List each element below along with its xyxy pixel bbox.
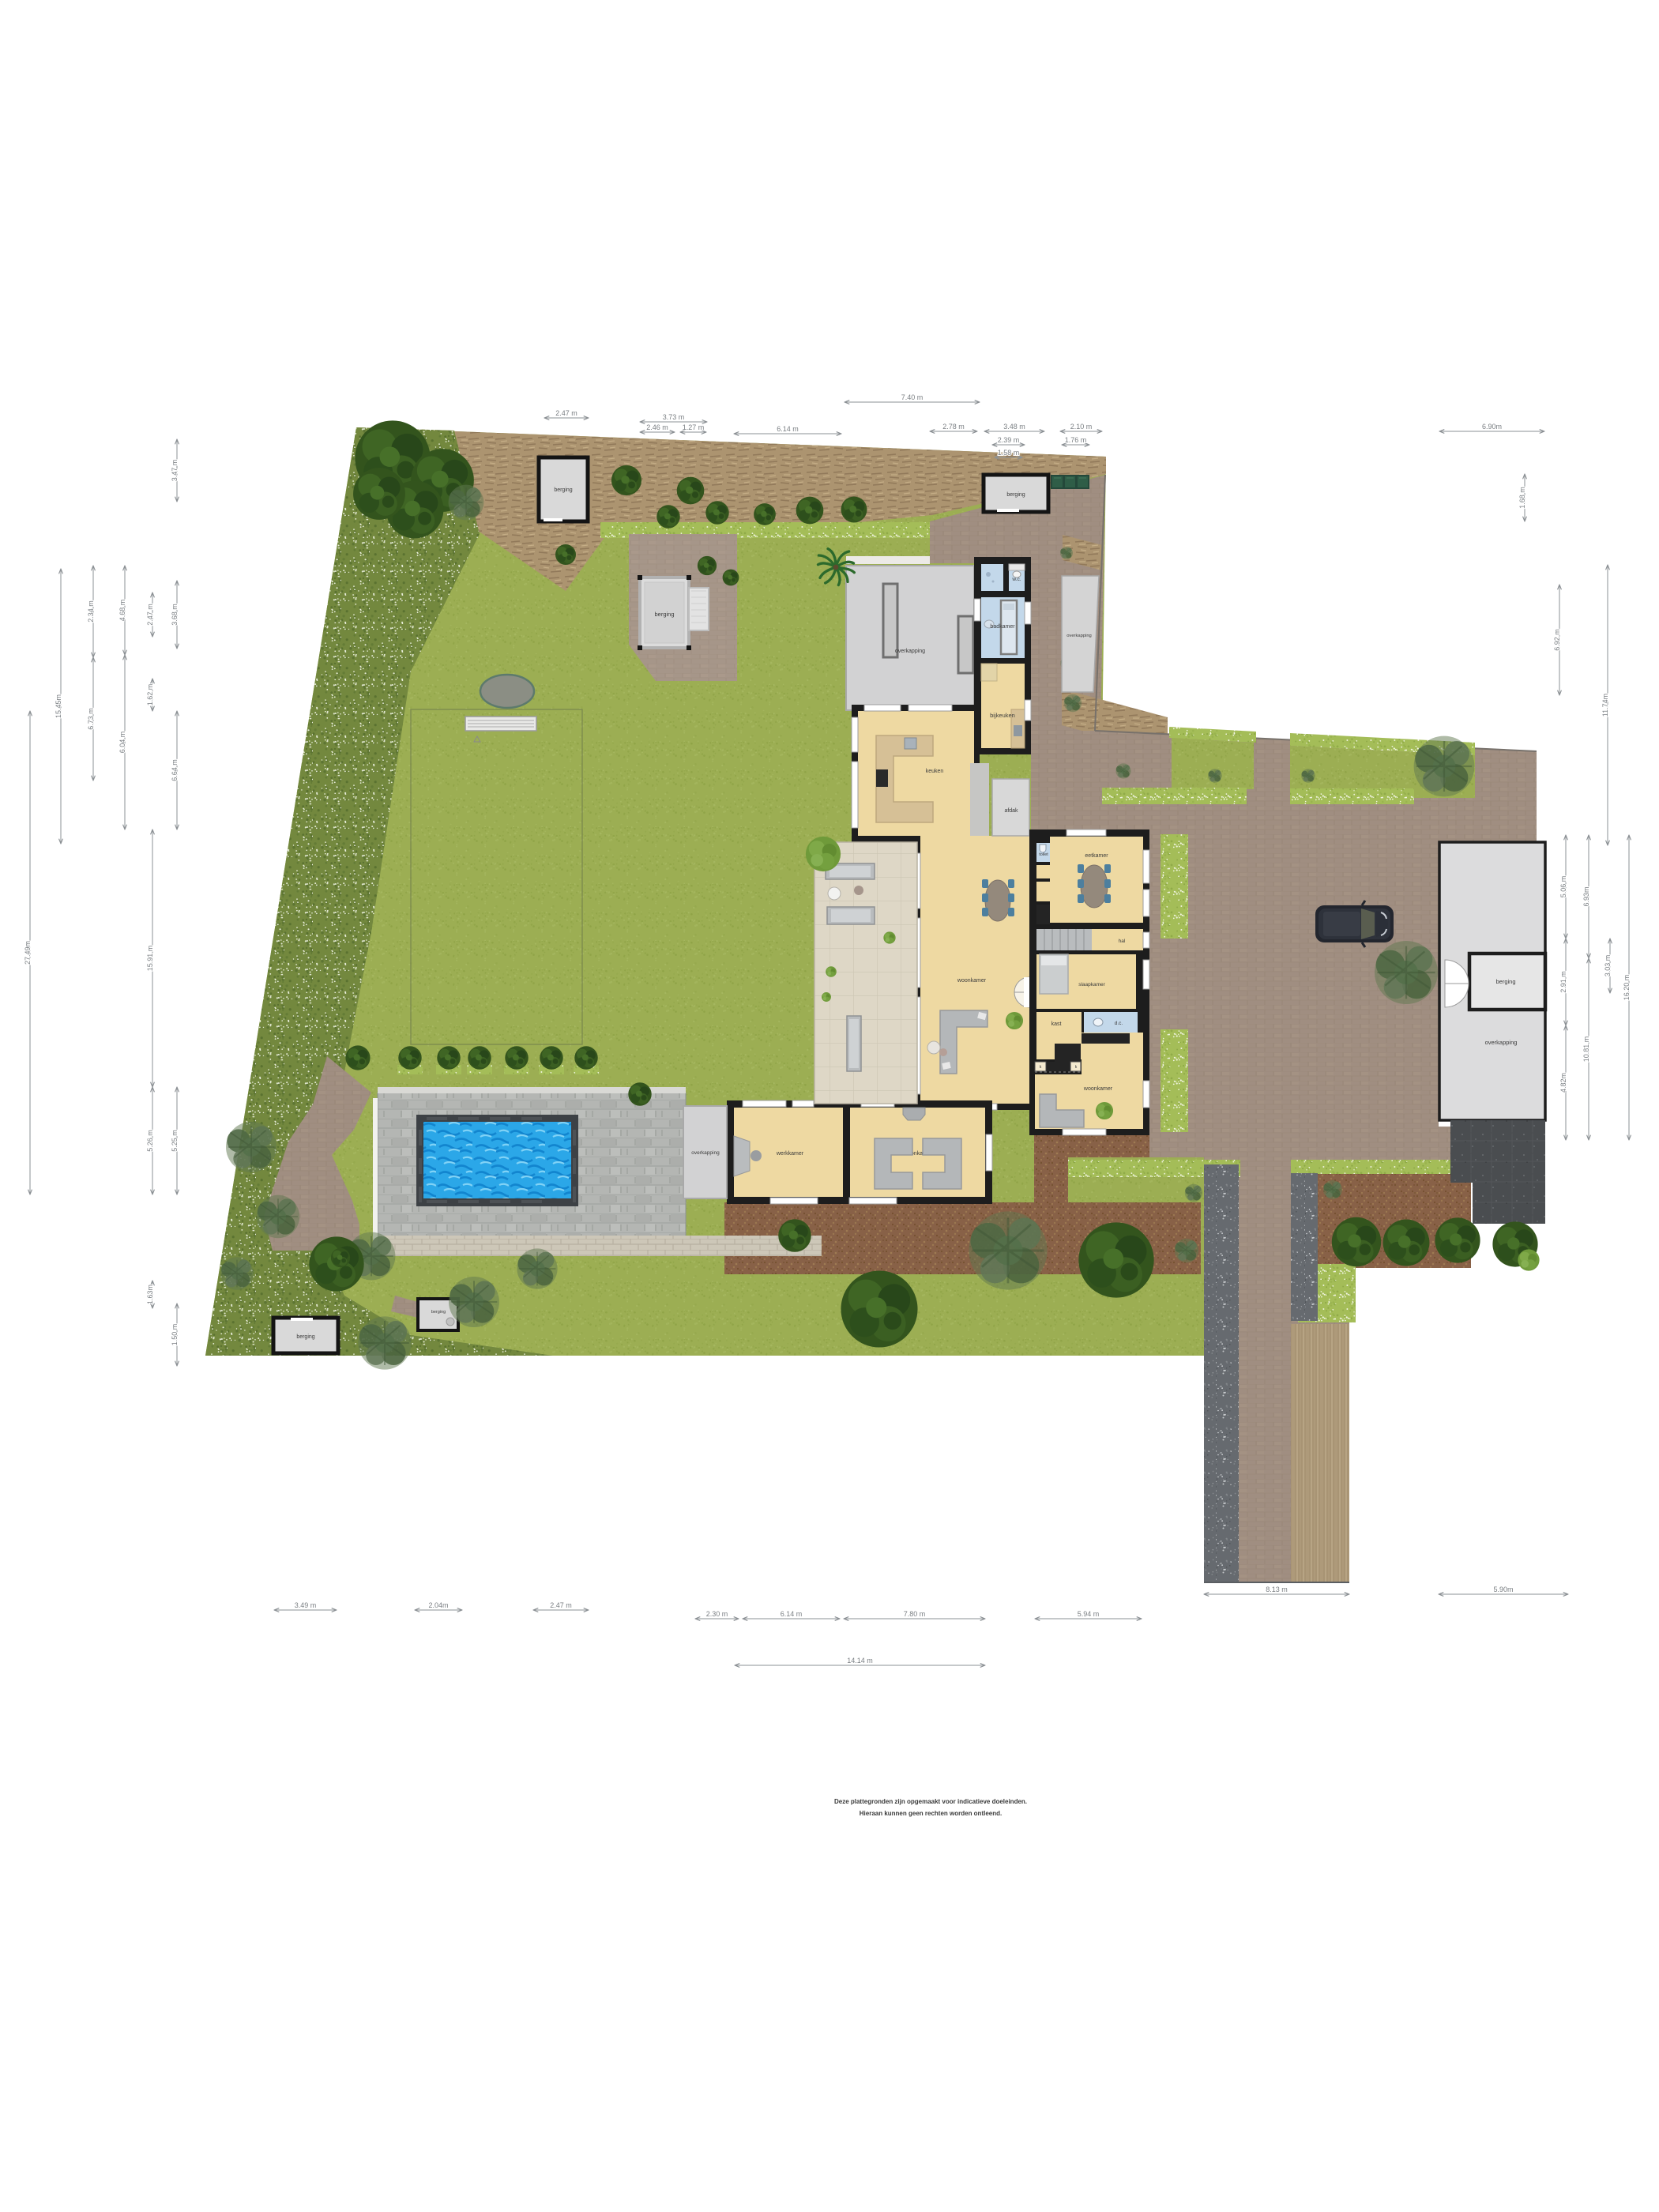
svg-text:berging: berging	[654, 611, 674, 618]
svg-text:1.63m: 1.63m	[146, 1285, 154, 1304]
svg-text:8.13 m: 8.13 m	[1266, 1586, 1288, 1593]
svg-text:overkapping: overkapping	[691, 1150, 720, 1156]
svg-text:badkamer: badkamer	[990, 624, 1015, 630]
svg-text:berging: berging	[554, 487, 572, 493]
svg-text:2.30 m: 2.30 m	[706, 1610, 728, 1618]
svg-text:3.47 m: 3.47 m	[171, 460, 179, 482]
svg-text:3.49 m: 3.49 m	[295, 1601, 317, 1609]
svg-text:15.91 m: 15.91 m	[146, 946, 154, 972]
svg-text:2.47 m: 2.47 m	[146, 604, 154, 626]
svg-text:overkapping: overkapping	[1485, 1039, 1518, 1046]
svg-text:1.58 m: 1.58 m	[998, 449, 1020, 457]
svg-text:5.25 m: 5.25 m	[171, 1130, 179, 1152]
svg-text:d.c.: d.c.	[1115, 1021, 1123, 1026]
svg-text:2.34 m: 2.34 m	[87, 600, 95, 623]
svg-text:6.92 m: 6.92 m	[1553, 629, 1561, 651]
svg-text:2.46 m: 2.46 m	[646, 423, 668, 431]
svg-text:5.06 m: 5.06 m	[1559, 876, 1567, 898]
svg-text:4.82m: 4.82m	[1559, 1073, 1567, 1093]
svg-text:11.74m: 11.74m	[1601, 694, 1609, 717]
svg-text:6.04 m: 6.04 m	[118, 732, 126, 754]
svg-text:2.91 m: 2.91 m	[1559, 971, 1567, 993]
svg-text:slaapkamer: slaapkamer	[1078, 982, 1105, 987]
svg-text:berging: berging	[431, 1310, 446, 1315]
svg-text:5.90m: 5.90m	[1493, 1586, 1513, 1593]
svg-text:3.68 m: 3.68 m	[171, 604, 179, 626]
svg-text:afdak: afdak	[1004, 808, 1018, 814]
svg-text:woonkamer: woonkamer	[1083, 1086, 1113, 1092]
svg-text:Deze plattegronden zijn opgema: Deze plattegronden zijn opgemaakt voor i…	[834, 1798, 1027, 1805]
svg-text:overkapping: overkapping	[895, 649, 925, 654]
svg-text:kast: kast	[1051, 1021, 1062, 1027]
svg-text:3.03 m: 3.03 m	[1604, 955, 1612, 977]
svg-text:Hieraan kunnen geen rechten wo: Hieraan kunnen geen rechten worden ontle…	[860, 1810, 1002, 1817]
svg-text:werkkamer: werkkamer	[776, 1151, 804, 1157]
svg-text:4.68 m: 4.68 m	[118, 600, 126, 622]
svg-text:5.94 m: 5.94 m	[1078, 1610, 1100, 1618]
svg-text:14.14 m: 14.14 m	[847, 1657, 873, 1665]
svg-text:7.40 m: 7.40 m	[901, 393, 924, 401]
svg-text:toilet: toilet	[1039, 852, 1048, 857]
svg-text:16.20 m: 16.20 m	[1623, 975, 1631, 1001]
svg-text:6.90m: 6.90m	[1482, 423, 1502, 431]
svg-text:berging: berging	[1495, 978, 1515, 985]
svg-text:3.48 m: 3.48 m	[1003, 423, 1025, 431]
svg-text:bijkeuken: bijkeuken	[990, 712, 1015, 719]
svg-text:6.93m: 6.93m	[1582, 886, 1590, 906]
svg-text:2.04m: 2.04m	[428, 1601, 448, 1609]
svg-text:6.73 m: 6.73 m	[87, 708, 95, 730]
svg-text:overkapping: overkapping	[1066, 634, 1092, 638]
svg-text:hal: hal	[1119, 939, 1126, 944]
svg-text:2.47 m: 2.47 m	[550, 1601, 572, 1609]
svg-text:berging: berging	[296, 1334, 314, 1340]
svg-text:2.47 m: 2.47 m	[555, 409, 577, 417]
svg-text:berging: berging	[1006, 492, 1025, 498]
svg-text:5.26 m: 5.26 m	[146, 1130, 154, 1152]
svg-text:eetkamer: eetkamer	[1085, 853, 1108, 859]
svg-text:keuken: keuken	[926, 769, 944, 774]
svg-text:1.27 m: 1.27 m	[683, 423, 705, 431]
svg-text:2.10 m: 2.10 m	[1070, 423, 1093, 431]
svg-text:1.62 m: 1.62 m	[146, 684, 154, 706]
svg-text:15.45m: 15.45m	[55, 694, 62, 718]
svg-text:6.14 m: 6.14 m	[781, 1610, 803, 1618]
svg-text:10.81 m: 10.81 m	[1582, 1036, 1590, 1063]
svg-text:2.78 m: 2.78 m	[942, 423, 965, 431]
svg-text:1.68 m: 1.68 m	[1518, 487, 1526, 509]
svg-text:w.c.: w.c.	[1011, 577, 1021, 582]
svg-text:1.50 m: 1.50 m	[171, 1324, 179, 1346]
svg-text:1.76 m: 1.76 m	[1065, 436, 1087, 444]
svg-text:woonkamer: woonkamer	[957, 978, 987, 984]
svg-text:2.39 m: 2.39 m	[998, 436, 1020, 444]
svg-text:27.49m: 27.49m	[24, 941, 32, 965]
svg-text:3.73 m: 3.73 m	[663, 413, 685, 421]
svg-text:6.64 m: 6.64 m	[171, 759, 179, 781]
svg-text:6.14 m: 6.14 m	[777, 425, 799, 433]
svg-text:7.80 m: 7.80 m	[904, 1610, 926, 1618]
